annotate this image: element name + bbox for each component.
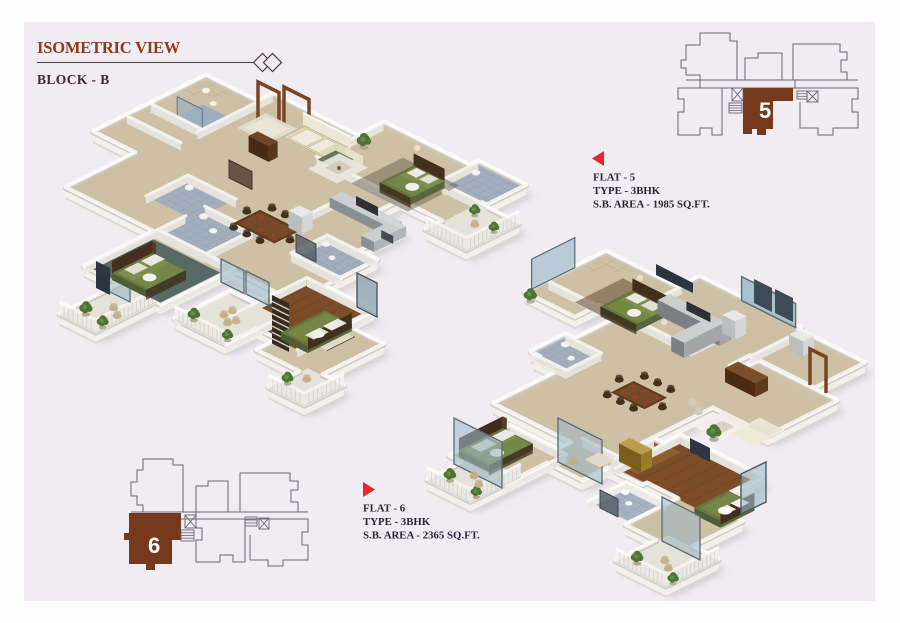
- svg-text:S.B. AREA - 1985 SQ.FT.: S.B. AREA - 1985 SQ.FT.: [593, 199, 710, 211]
- svg-text:ISOMETRIC VIEW: ISOMETRIC VIEW: [37, 38, 181, 57]
- svg-text:5: 5: [759, 98, 771, 123]
- svg-text:BLOCK - B: BLOCK - B: [37, 72, 110, 87]
- svg-text:FLAT - 5: FLAT - 5: [593, 172, 635, 184]
- svg-text:6: 6: [148, 533, 160, 558]
- svg-text:TYPE - 3BHK: TYPE - 3BHK: [363, 516, 431, 528]
- svg-text:S.B. AREA - 2365 SQ.FT.: S.B. AREA - 2365 SQ.FT.: [363, 530, 480, 542]
- svg-text:TYPE - 3BHK: TYPE - 3BHK: [593, 185, 661, 197]
- svg-text:FLAT - 6: FLAT - 6: [363, 503, 406, 515]
